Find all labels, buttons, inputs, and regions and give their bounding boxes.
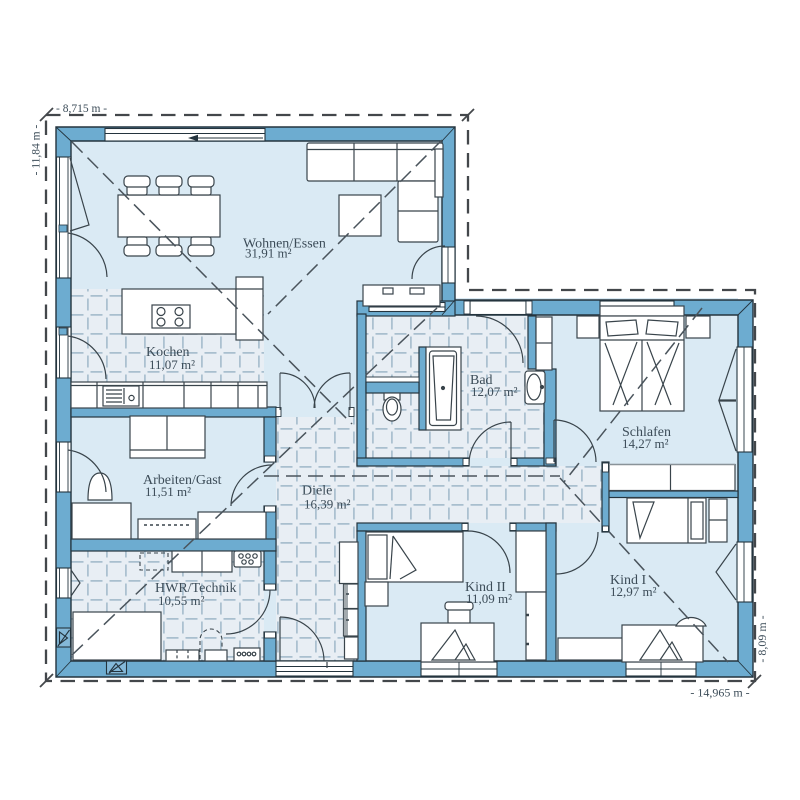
svg-text:- 8,09 m -: - 8,09 m - — [755, 615, 769, 662]
svg-text:11,51 m²: 11,51 m² — [145, 484, 191, 499]
svg-text:12,97 m²: 12,97 m² — [610, 584, 657, 599]
svg-text:12,07 m²: 12,07 m² — [471, 384, 518, 399]
svg-text:16,39 m²: 16,39 m² — [304, 497, 351, 512]
svg-text:- 14,965 m -: - 14,965 m - — [690, 686, 749, 700]
svg-text:11,09 m²: 11,09 m² — [466, 591, 512, 606]
svg-text:- 8,715 m -: - 8,715 m - — [56, 103, 107, 115]
svg-text:31,91 m²: 31,91 m² — [245, 246, 292, 261]
svg-text:- 11,84 m -: - 11,84 m - — [31, 124, 43, 175]
svg-text:10,55 m²: 10,55 m² — [158, 593, 205, 608]
svg-text:14,27 m²: 14,27 m² — [622, 436, 669, 451]
svg-text:11,07 m²: 11,07 m² — [149, 357, 195, 372]
